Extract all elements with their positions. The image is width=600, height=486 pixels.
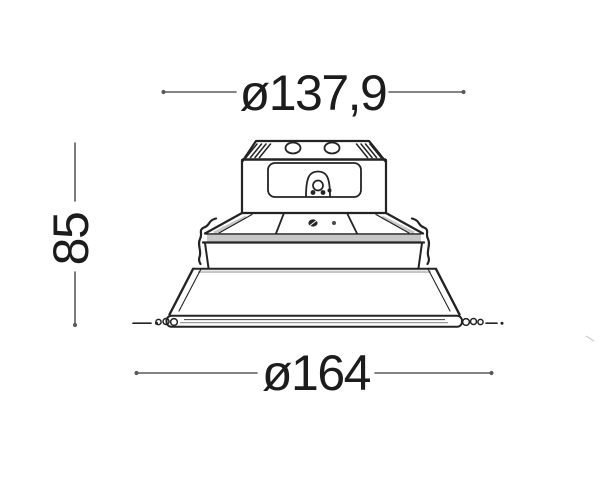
- dimension-tick-top-left: [161, 90, 165, 94]
- dimension-tick-bottom-right: [489, 371, 493, 375]
- trim-flange: [156, 316, 483, 327]
- curl: [463, 319, 470, 326]
- dimension-height: 85: [43, 143, 99, 327]
- curl: [478, 319, 483, 324]
- heatsink-band: [203, 234, 424, 243]
- band-shading: [207, 235, 421, 242]
- mounting-hole-left: [286, 143, 301, 154]
- cable-clamp: [306, 172, 332, 197]
- heatsink-mid-sides: [205, 243, 422, 268]
- downlight-illustration: [133, 141, 594, 341]
- stray-mark: [586, 336, 594, 341]
- drawing-page: ø137,9 85 ø164: [0, 0, 600, 486]
- cable-clamp-foot-right: [321, 190, 326, 195]
- dimension-tick-bottom-left: [134, 371, 138, 375]
- dimension-tick-height-bottom: [73, 323, 77, 327]
- base-outer-slants: [170, 269, 460, 315]
- driver-housing: [242, 141, 386, 213]
- trim-ring: [167, 316, 463, 327]
- cable-clamp-tab: [328, 189, 332, 193]
- cable-clamp-foot-left: [311, 190, 316, 195]
- dimension-bottom-diameter: ø164: [134, 345, 493, 401]
- heatsink-shoulder: [205, 213, 423, 234]
- curl: [471, 319, 477, 325]
- indicator-dot: [332, 221, 336, 225]
- cable-clamp-dome: [306, 172, 330, 197]
- base-inner-slants: [179, 269, 450, 311]
- dimension-label-height: 85: [43, 213, 99, 266]
- rolled-edge-right: [463, 319, 484, 326]
- dimension-tick-top-right: [461, 90, 465, 94]
- ceiling-dot-right: [501, 322, 504, 325]
- dimension-label-top-diameter: ø137,9: [240, 65, 387, 121]
- reflector-base: [170, 269, 460, 315]
- technical-drawing-canvas: ø137,9 85 ø164: [0, 0, 600, 486]
- dimension-top-diameter: ø137,9: [161, 65, 465, 121]
- ceiling-dot-left: [155, 322, 158, 325]
- dimension-label-bottom-diameter: ø164: [262, 345, 371, 401]
- cable-clamp-ring: [313, 181, 323, 191]
- mounting-hole-right: [325, 143, 340, 154]
